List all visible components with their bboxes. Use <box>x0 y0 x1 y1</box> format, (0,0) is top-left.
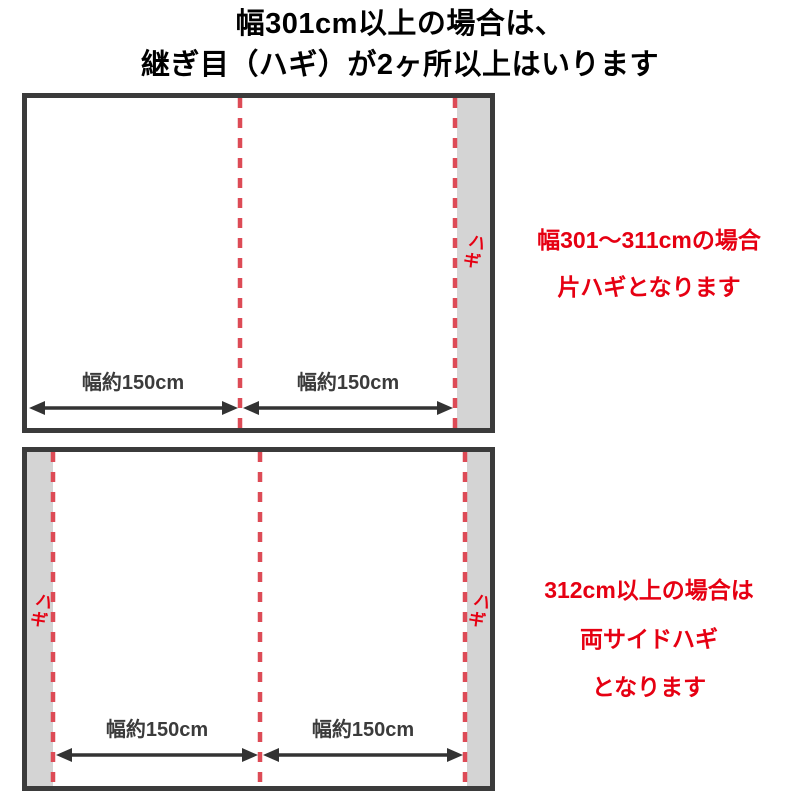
width-label-right: 幅約150cm <box>263 713 463 742</box>
diagram-single-hagi: ハギ 幅約150cm 幅約150cm <box>22 93 495 433</box>
width-label-left: 幅約150cm <box>57 713 257 742</box>
width-arrow-left <box>56 748 258 762</box>
width-arrow-right <box>243 401 453 415</box>
caption-double-hagi-line3: となります <box>498 663 800 712</box>
caption-double-hagi: 312cm以上の場合は 両サイドハギ となります <box>498 566 800 712</box>
page-title-line1: 幅301cm以上の場合は、 <box>0 4 800 45</box>
width-arrow-left <box>29 401 238 415</box>
diagram-double-hagi: ハギ ハギ 幅約150cm 幅約150cm <box>22 447 495 791</box>
caption-single-hagi-line2: 片ハギとなります <box>498 264 800 311</box>
width-arrow-right <box>263 748 463 762</box>
caption-single-hagi: 幅301〜311cmの場合 片ハギとなります <box>498 217 800 311</box>
page-title-line2: 継ぎ目（ハギ）が2ヶ所以上はいります <box>0 45 800 86</box>
caption-double-hagi-line2: 両サイドハギ <box>498 615 800 664</box>
width-label-right: 幅約150cm <box>248 366 448 395</box>
width-label-left: 幅約150cm <box>33 366 233 395</box>
page-title: 幅301cm以上の場合は、 継ぎ目（ハギ）が2ヶ所以上はいります <box>0 4 800 86</box>
caption-double-hagi-line1: 312cm以上の場合は <box>498 566 800 615</box>
caption-single-hagi-line1: 幅301〜311cmの場合 <box>498 217 800 264</box>
